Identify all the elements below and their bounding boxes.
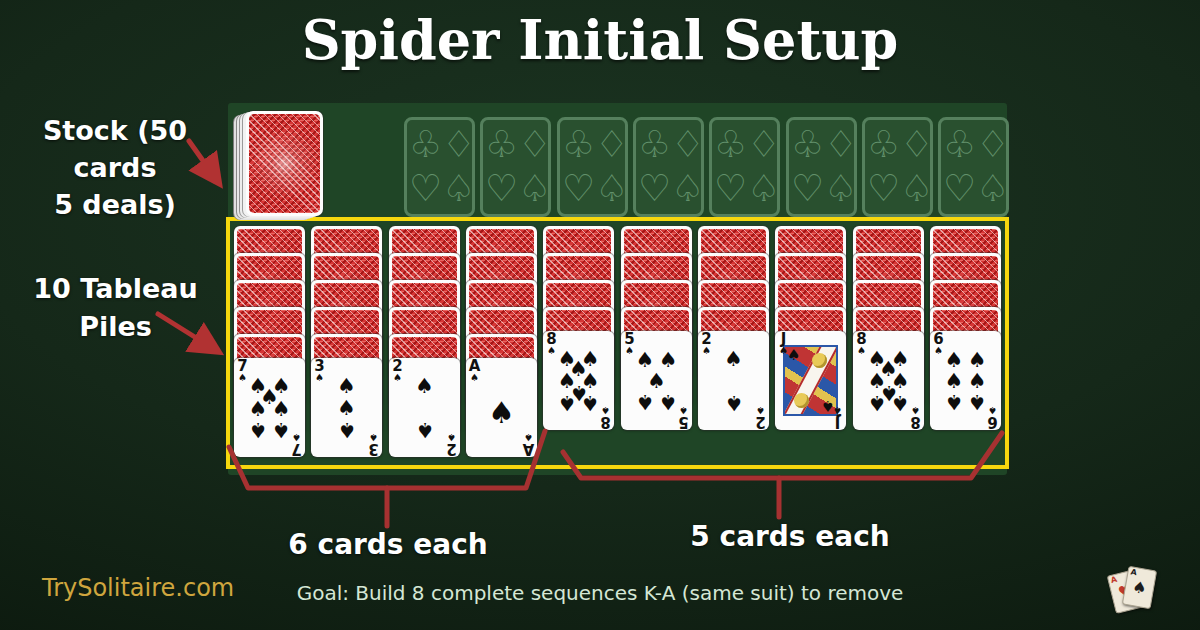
face-up-card-J-spade[interactable]: J♠J♠✚✚♠♠: [775, 331, 846, 430]
face-up-card-5-spade[interactable]: 5♠5♠♠♠♠♠♠: [621, 331, 692, 430]
card-corner-index: 5♠: [677, 406, 690, 429]
stock-pile[interactable]: [246, 111, 323, 216]
jack-face-art: ✚✚♠♠: [783, 345, 838, 416]
card-corner-index: 8♠: [909, 406, 922, 429]
spade-pip-icon: ♠: [659, 390, 678, 411]
spade-outline-icon: ♤: [976, 170, 1009, 208]
card-rank: 2: [700, 332, 713, 346]
card-rank: 6: [932, 332, 945, 346]
club-outline-icon: ♧: [791, 126, 824, 164]
stock-label: Stock (50 cards 5 deals): [0, 112, 230, 223]
heart-outline-icon: ♡: [714, 170, 747, 208]
card-rank: 3: [313, 359, 326, 373]
card-rank: A: [522, 442, 535, 456]
heart-outline-icon: ♡: [485, 170, 518, 208]
club-outline-icon: ♧: [867, 126, 900, 164]
club-outline-icon: ♧: [943, 126, 976, 164]
foundation-slot-4[interactable]: ♧♢♡♤: [633, 117, 704, 217]
card-rank: 6: [986, 415, 999, 429]
face-up-card-A-spade[interactable]: A♠A♠♠: [466, 358, 537, 457]
spade-pip-icon: ♠: [337, 375, 356, 396]
pip-area: ♠♠♠♠♠♠♠♠: [862, 344, 915, 417]
spade-pip-icon: ♠: [415, 419, 434, 440]
tableau-label-line2: Piles: [8, 308, 223, 346]
goal-text: Goal: Build 8 complete sequences K-A (sa…: [0, 581, 1200, 605]
mini-card-rank: A: [1110, 576, 1118, 585]
foundation-slot-5[interactable]: ♧♢♡♤: [709, 117, 780, 217]
club-outline-icon: ♧: [409, 126, 442, 164]
spade-outline-icon: ♤: [824, 170, 857, 208]
face-up-card-2-spade[interactable]: 2♠2♠♠♠: [698, 331, 769, 430]
card-corner-index: 7♠: [236, 359, 249, 382]
spade-pip-icon: ♠: [272, 419, 291, 440]
heart-outline-icon: ♡: [791, 170, 824, 208]
card-corner-index: 8♠: [855, 332, 868, 355]
card-rank: 7: [290, 442, 303, 456]
pip-area: ♠♠: [707, 344, 760, 417]
spade-pip-icon: ♠: [337, 419, 356, 440]
jack-head: [812, 353, 827, 368]
spade-pip-icon: ♠: [724, 392, 743, 413]
pip-area: ♠♠♠: [320, 371, 373, 444]
pip-area: ♠♠: [398, 371, 451, 444]
card-corner-index: J♠: [831, 406, 844, 429]
six-cards-label: 6 cards each: [268, 528, 508, 561]
card-rank: A: [468, 359, 481, 373]
diamond-outline-icon: ♢: [671, 126, 704, 164]
spade-pip-icon: ♠: [968, 370, 987, 391]
foundation-slot-1[interactable]: ♧♢♡♤: [404, 117, 475, 217]
diamond-outline-icon: ♢: [900, 126, 933, 164]
spade-pip-icon: ♠: [944, 370, 963, 391]
club-outline-icon: ♧: [562, 126, 595, 164]
pip-area: ♠♠♠♠♠♠♠♠: [552, 344, 605, 417]
foundation-slot-6[interactable]: ♧♢♡♤: [786, 117, 857, 217]
card-corner-index: 5♠: [623, 332, 636, 355]
spade-outline-icon: ♤: [518, 170, 551, 208]
club-outline-icon: ♧: [714, 126, 747, 164]
pip-area: ♠♠♠♠♠♠♠: [243, 371, 296, 444]
spade-pip-icon: ♠: [581, 392, 600, 413]
page-title: Spider Initial Setup: [0, 8, 1200, 72]
card-corner-index: 2♠: [700, 332, 713, 355]
spade-pip-icon: ♠: [272, 398, 291, 419]
mini-card-ace-spades: A♠: [1122, 566, 1157, 609]
spade-outline-icon: ♤: [595, 170, 628, 208]
card-rank: 5: [623, 332, 636, 346]
card-corner-index: 8♠: [545, 332, 558, 355]
card-rank: 2: [445, 442, 458, 456]
diamond-outline-icon: ♢: [747, 126, 780, 164]
diamond-outline-icon: ♢: [518, 126, 551, 164]
card-corner-index: A♠: [522, 433, 535, 456]
card-corner-index: 2♠: [391, 359, 404, 382]
spade-suit-icon: ♠: [1125, 578, 1154, 598]
spade-pip-icon: ♠: [635, 390, 654, 411]
club-outline-icon: ♧: [638, 126, 671, 164]
card-rank: 3: [367, 442, 380, 456]
spade-pip-icon: ♠: [415, 375, 434, 396]
heart-outline-icon: ♡: [409, 170, 442, 208]
face-up-card-3-spade[interactable]: 3♠3♠♠♠♠: [311, 358, 382, 457]
card-corner-index: 6♠: [986, 406, 999, 429]
spade-outline-icon: ♤: [747, 170, 780, 208]
face-up-card-8-spade[interactable]: 8♠8♠♠♠♠♠♠♠♠♠: [853, 331, 924, 430]
foundation-slot-7[interactable]: ♧♢♡♤: [862, 117, 933, 217]
spade-pip-icon: ♠: [248, 398, 267, 419]
heart-outline-icon: ♡: [562, 170, 595, 208]
card-rank: 8: [599, 415, 612, 429]
card-rank: 8: [855, 332, 868, 346]
card-corner-index: 7♠: [290, 433, 303, 456]
diamond-outline-icon: ♢: [824, 126, 857, 164]
diamond-outline-icon: ♢: [595, 126, 628, 164]
spade-suit-icon: ♠: [777, 346, 790, 355]
card-corner-index: 2♠: [754, 406, 767, 429]
card-corner-index: 2♠: [445, 433, 458, 456]
pip-area: ♠♠♠♠♠: [630, 344, 683, 417]
spade-pip-icon: ♠: [488, 398, 515, 428]
spade-suit-icon: ♠: [831, 406, 844, 415]
card-corner-index: J♠: [777, 332, 790, 355]
spade-pip-icon: ♠: [248, 419, 267, 440]
heart-outline-icon: ♡: [638, 170, 671, 208]
card-rank: 2: [391, 359, 404, 373]
foundation-slot-3[interactable]: ♧♢♡♤: [557, 117, 628, 217]
tableau-label: 10 Tableau Piles: [8, 270, 223, 346]
foundation-slot-8[interactable]: ♧♢♡♤: [938, 117, 1009, 217]
spade-pip-icon: ♠: [968, 390, 987, 411]
pip-area: ♠: [475, 371, 528, 444]
card-corner-index: 6♠: [932, 332, 945, 355]
pip-area: ♠♠♠♠♠♠: [939, 344, 992, 417]
card-corner-index: A♠: [468, 359, 481, 382]
five-cards-label: 5 cards each: [670, 520, 910, 553]
spade-outline-icon: ♤: [900, 170, 933, 208]
card-rank: 2: [754, 415, 767, 429]
card-pair-icon: A♥A♠: [1108, 565, 1166, 623]
diamond-outline-icon: ♢: [442, 126, 475, 164]
face-up-card-7-spade[interactable]: 7♠7♠♠♠♠♠♠♠♠: [234, 358, 305, 457]
card-rank: 7: [236, 359, 249, 373]
spade-pip-icon: ♠: [557, 392, 576, 413]
face-up-card-6-spade[interactable]: 6♠6♠♠♠♠♠♠♠: [930, 331, 1001, 430]
card-corner-index: 3♠: [313, 359, 326, 382]
card-rank: 5: [677, 415, 690, 429]
spade-pip-icon: ♠: [337, 397, 356, 418]
card-corner-index: 3♠: [367, 433, 380, 456]
card-rank: 8: [909, 415, 922, 429]
heart-outline-icon: ♡: [867, 170, 900, 208]
card-back-pattern: [249, 114, 320, 213]
face-up-card-2-spade[interactable]: 2♠2♠♠♠: [389, 358, 460, 457]
spade-pip-icon: ♠: [647, 370, 666, 391]
card-rank: J: [831, 415, 844, 429]
card-rank: J: [777, 332, 790, 346]
diamond-outline-icon: ♢: [976, 126, 1009, 164]
club-outline-icon: ♧: [485, 126, 518, 164]
stock-label-line2: 5 deals): [0, 186, 230, 223]
spade-pip-icon: ♠: [724, 348, 743, 369]
mini-card-rank: A: [1130, 568, 1137, 577]
heart-outline-icon: ♡: [943, 170, 976, 208]
spade-pip-icon: ♠: [891, 392, 910, 413]
spade-pip-icon: ♠: [944, 390, 963, 411]
stock-label-line1: Stock (50 cards: [0, 112, 230, 186]
card-rank: 8: [545, 332, 558, 346]
card-corner-index: 8♠: [599, 406, 612, 429]
tableau-label-line1: 10 Tableau: [8, 270, 223, 308]
face-up-card-8-spade[interactable]: 8♠8♠♠♠♠♠♠♠♠♠: [543, 331, 614, 430]
spade-pip-icon: ♠: [867, 392, 886, 413]
foundation-slot-2[interactable]: ♧♢♡♤: [480, 117, 551, 217]
spade-outline-icon: ♤: [442, 170, 475, 208]
spade-outline-icon: ♤: [671, 170, 704, 208]
